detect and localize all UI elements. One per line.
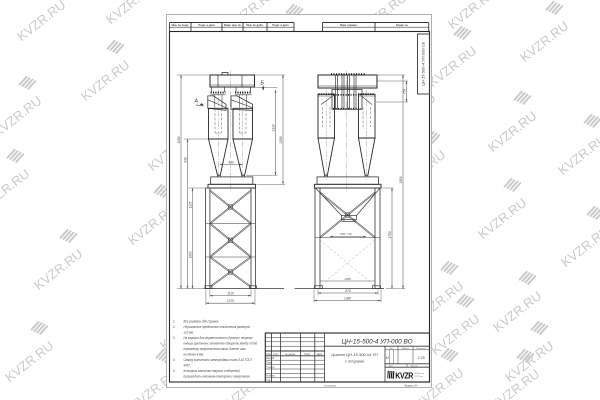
svg-text:3350: 3350 [399, 176, 403, 183]
svg-text:М: М [386, 356, 389, 360]
svg-text:Справ. №: Справ. № [396, 24, 408, 27]
svg-text:KVZR.RU: KVZR.RU [445, 0, 499, 32]
svg-text:4.: 4. [173, 358, 176, 362]
svg-text:Масса: Масса [402, 348, 409, 350]
svg-text:Лист: Лист [273, 353, 279, 356]
svg-text:KVZR.RU: KVZR.RU [485, 108, 539, 155]
svg-text:1380: 1380 [344, 277, 351, 281]
svg-text:Утв.: Утв. [266, 379, 271, 382]
svg-text:Контроль качества сварных соед: Контроль качества сварных соединений [183, 369, 239, 373]
svg-text:938: 938 [184, 157, 188, 163]
svg-text:Изм: Изм [266, 353, 271, 356]
svg-text:Н.контр.: Н.контр. [266, 375, 276, 378]
svg-text:850 × 50: 850 × 50 [341, 232, 352, 236]
svg-text:2280: 2280 [279, 136, 283, 144]
svg-text:±10 мм.: ±10 мм. [183, 330, 194, 334]
svg-text:1125: 1125 [189, 201, 193, 208]
svg-text:KVZR.RU: KVZR.RU [78, 57, 132, 104]
svg-text:Инв. № подл.: Инв. № подл. [172, 23, 189, 27]
svg-text:Все размеры для справок.: Все размеры для справок. [183, 319, 219, 323]
svg-text:3280: 3280 [177, 136, 181, 143]
svg-text:Копировал: Копировал [324, 384, 337, 387]
svg-text:Инв. № дубл.: Инв. № дубл. [246, 23, 263, 27]
svg-text:На каркасе для герметичности б: На каркасе для герметичности бункер и оп… [183, 336, 252, 340]
svg-text:Перв. примен.: Перв. примен. [340, 24, 358, 27]
svg-text:Разраб.: Разраб. [266, 357, 275, 360]
svg-text:Взам. инв. №: Взам. инв. № [224, 23, 241, 27]
svg-text:KVZR.RU: KVZR.RU [0, 166, 32, 213]
svg-text:1750: 1750 [388, 231, 392, 238]
svg-text:Циклон ЦН-15-500 х4 УП: Циклон ЦН-15-500 х4 УП [331, 352, 377, 357]
svg-text:ИП Елькин: ИП Елькин [415, 373, 425, 375]
svg-text:Дата: Дата [317, 353, 323, 356]
svg-text:9467.: 9467. [183, 363, 190, 367]
svg-text:KVZR.RU: KVZR.RU [14, 0, 68, 44]
svg-text:KVZR.RU: KVZR.RU [517, 18, 571, 65]
svg-text:Пров.: Пров. [266, 361, 273, 364]
svg-text:KVZR.RU: KVZR.RU [0, 93, 44, 140]
svg-text:1.: 1. [173, 319, 176, 323]
svg-text:Формат А4: Формат А4 [404, 383, 418, 387]
svg-text:870: 870 [345, 289, 351, 293]
svg-text:1800: 1800 [189, 251, 193, 258]
svg-text:кольца циклонных элементов обв: кольца циклонных элементов обварить межд… [183, 341, 257, 345]
svg-text:1380: 1380 [344, 297, 351, 301]
svg-text:2022 год: 2022 год [415, 376, 424, 378]
svg-text:2.: 2. [172, 325, 175, 329]
svg-text:1:25: 1:25 [418, 356, 425, 360]
svg-text:ЦН-15-500-4 УП-000 ВО: ЦН-15-500-4 УП-000 ВО [341, 339, 412, 346]
svg-text:Лист: Лист [389, 366, 394, 368]
svg-text:KVZR.RU: KVZR.RU [425, 43, 479, 90]
svg-text:KVZR: KVZR [395, 371, 413, 381]
svg-text:440: 440 [228, 161, 234, 165]
svg-text:KVZR.RU: KVZR.RU [103, 0, 157, 27]
svg-text:Подп. и дата: Подп. и дата [198, 23, 215, 27]
svg-text:KVZR.RU: KVZR.RU [558, 223, 600, 270]
svg-text:производить внешним осмотром и: производить внешним осмотром и измерение… [183, 374, 250, 378]
svg-text:Лит.: Лит. [389, 348, 393, 350]
svg-text:Подп. и дата: Подп. и дата [272, 23, 289, 27]
svg-text:Подп.: Подп. [304, 353, 311, 356]
svg-text:KVZR.RU: KVZR.RU [31, 246, 85, 293]
svg-text:Т.контр.: Т.контр. [266, 366, 275, 369]
svg-text:не менее 4 мм.: не менее 4 мм. [183, 352, 204, 356]
svg-text:3.: 3. [173, 336, 176, 340]
svg-text:KVZR.RU: KVZR.RU [428, 311, 482, 358]
svg-text:№ докум.: № докум. [285, 353, 296, 356]
svg-text:KVZR.RU: KVZR.RU [555, 131, 600, 178]
svg-text:2130: 2130 [272, 124, 276, 132]
svg-text:А: А [194, 99, 199, 105]
svg-text:Неуказанные предельные отклоне: Неуказанные предельные отклонения размер… [183, 325, 250, 329]
svg-text:Масштаб: Масштаб [417, 348, 427, 350]
svg-text:1110: 1110 [227, 292, 234, 296]
svg-text:KVZR.RU: KVZR.RU [2, 338, 56, 385]
svg-text:Сварку выполнить электродами т: Сварку выполнить электродами типа Э-42 Г… [183, 358, 253, 362]
svg-text:с опорами: с опорами [345, 359, 365, 364]
svg-text:KVZR.RU: KVZR.RU [475, 195, 529, 242]
svg-text:периметру прерывистым швом. К: периметру прерывистым швом. Катет шва [183, 347, 245, 351]
svg-text:ЦН-15-500-4 УП-000 СБ: ЦН-15-500-4 УП-000 СБ [421, 41, 426, 86]
svg-text:754: 754 [403, 89, 407, 95]
svg-text:1370: 1370 [227, 299, 234, 303]
svg-text:Листов: Листов [410, 366, 418, 368]
svg-text:5.: 5. [173, 369, 176, 373]
